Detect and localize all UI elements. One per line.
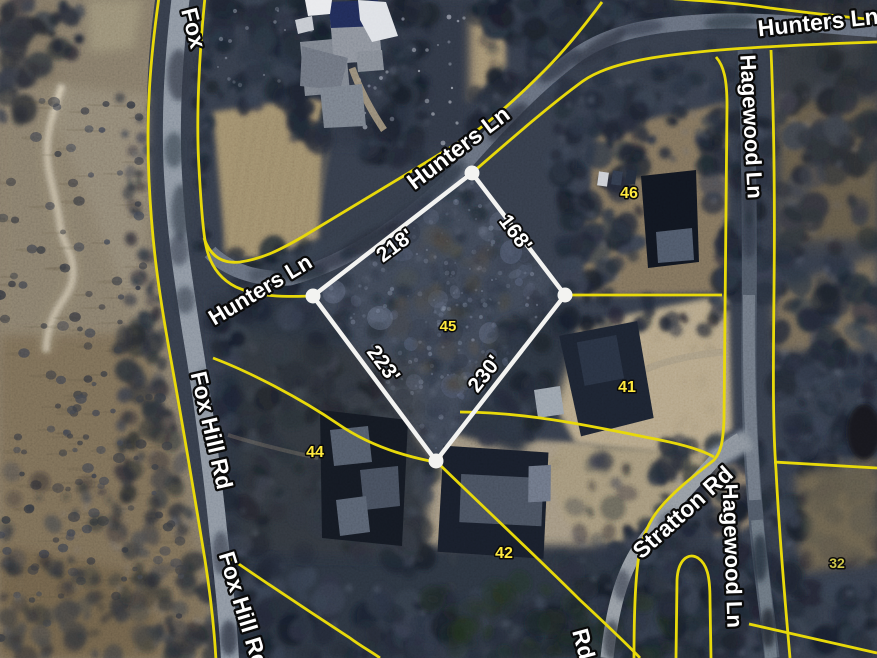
svg-text:44: 44: [306, 444, 324, 461]
svg-text:45: 45: [440, 318, 457, 335]
svg-text:46: 46: [620, 185, 638, 202]
svg-text:41: 41: [618, 379, 636, 396]
svg-text:Hagewood Ln: Hagewood Ln: [717, 483, 747, 628]
svg-text:32: 32: [829, 555, 845, 571]
svg-text:42: 42: [495, 545, 513, 562]
